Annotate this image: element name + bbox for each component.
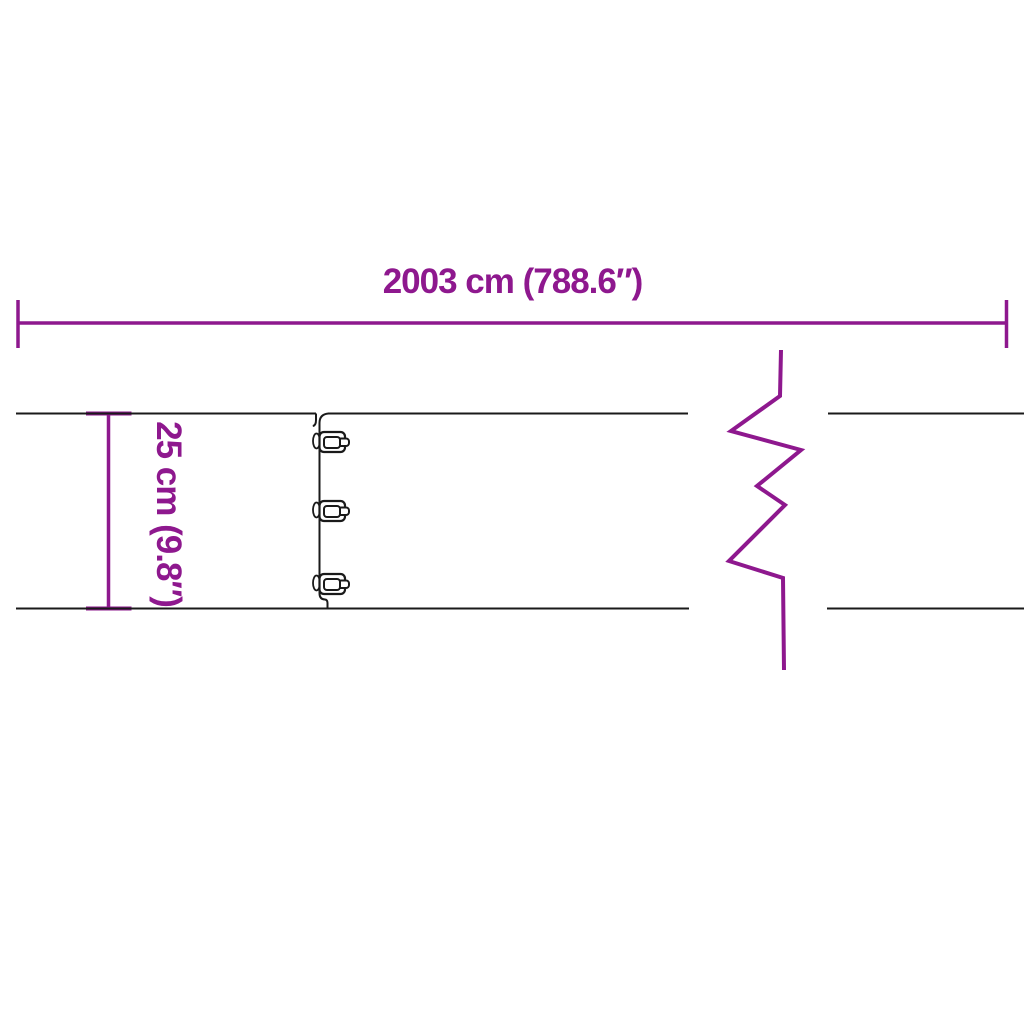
break-zigzag-icon bbox=[729, 350, 801, 670]
height-dimension-label: 25 cm (9.8″) bbox=[148, 421, 188, 607]
dimension-diagram: 2003 cm (788.6″) 25 cm (9.8″) bbox=[0, 0, 1024, 1024]
height-dimension-line-icon bbox=[86, 414, 132, 609]
width-dimension-label: 2003 cm (788.6″) bbox=[18, 262, 1007, 302]
connector-clip-icon bbox=[313, 574, 349, 594]
connector-clip-icon bbox=[313, 432, 349, 452]
seam-top-left-hook bbox=[313, 414, 316, 427]
connector-clip-icon bbox=[313, 501, 349, 521]
width-dimension-line-icon bbox=[18, 300, 1007, 348]
